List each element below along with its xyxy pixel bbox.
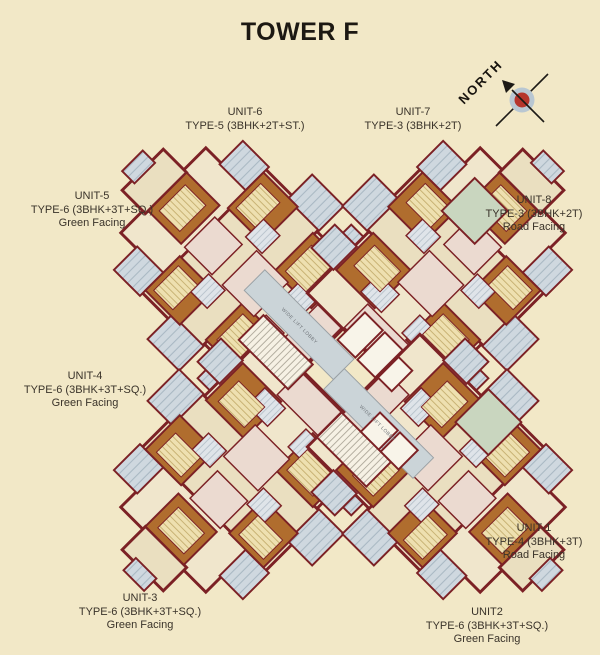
unit-label-unit-8: UNIT-8TYPE-3 (3BHK+2T)Road Facing <box>486 194 583 235</box>
unit-label-line: TYPE-3 (3BHK+2T) <box>365 120 462 134</box>
unit-label-line: UNIT-7 <box>365 106 462 120</box>
compass-icon <box>488 66 558 136</box>
unit-label-unit-5: UNIT-5TYPE-6 (3BHK+3T+SQ.)Green Facing <box>31 190 153 231</box>
unit-label-line: TYPE-5 (3BHK+2T+ST.) <box>185 120 304 134</box>
unit-label-unit-3: UNIT-3TYPE-6 (3BHK+3T+SQ.)Green Facing <box>79 592 201 633</box>
unit-label-unit-6: UNIT-6TYPE-5 (3BHK+2T+ST.) <box>185 106 304 133</box>
page-title: TOWER F <box>0 18 600 47</box>
unit-label-line: Road Facing <box>486 549 583 563</box>
unit-label-line: TYPE-4 (3BHK+3T) <box>486 536 583 550</box>
unit-label-unit-1: UNIT-1TYPE-4 (3BHK+3T)Road Facing <box>486 522 583 563</box>
unit-label-line: UNIT-5 <box>31 190 153 204</box>
unit-label-line: TYPE-6 (3BHK+3T+SQ.) <box>426 620 548 634</box>
unit-label-line: UNIT-1 <box>486 522 583 536</box>
unit-label-unit-7: UNIT-7TYPE-3 (3BHK+2T) <box>365 106 462 133</box>
unit-label-line: UNIT2 <box>426 606 548 620</box>
unit-label-line: Green Facing <box>426 633 548 647</box>
unit-label-line: Green Facing <box>79 619 201 633</box>
unit-label-line: UNIT-3 <box>79 592 201 606</box>
unit-label-line: Green Facing <box>31 217 153 231</box>
unit-label-line: TYPE-6 (3BHK+3T+SQ.) <box>31 204 153 218</box>
unit-label-line: UNIT-6 <box>185 106 304 120</box>
unit-label-line: TYPE-6 (3BHK+3T+SQ.) <box>79 606 201 620</box>
unit-label-line: TYPE-3 (3BHK+2T) <box>486 208 583 222</box>
unit-label-line: UNIT-8 <box>486 194 583 208</box>
unit-label-unit2: UNIT2TYPE-6 (3BHK+3T+SQ.)Green Facing <box>426 606 548 647</box>
unit-label-line: Green Facing <box>24 397 146 411</box>
unit-label-unit-4: UNIT-4TYPE-6 (3BHK+3T+SQ.)Green Facing <box>24 370 146 411</box>
unit-label-line: TYPE-6 (3BHK+3T+SQ.) <box>24 384 146 398</box>
unit-label-line: Road Facing <box>486 221 583 235</box>
unit-label-line: UNIT-4 <box>24 370 146 384</box>
